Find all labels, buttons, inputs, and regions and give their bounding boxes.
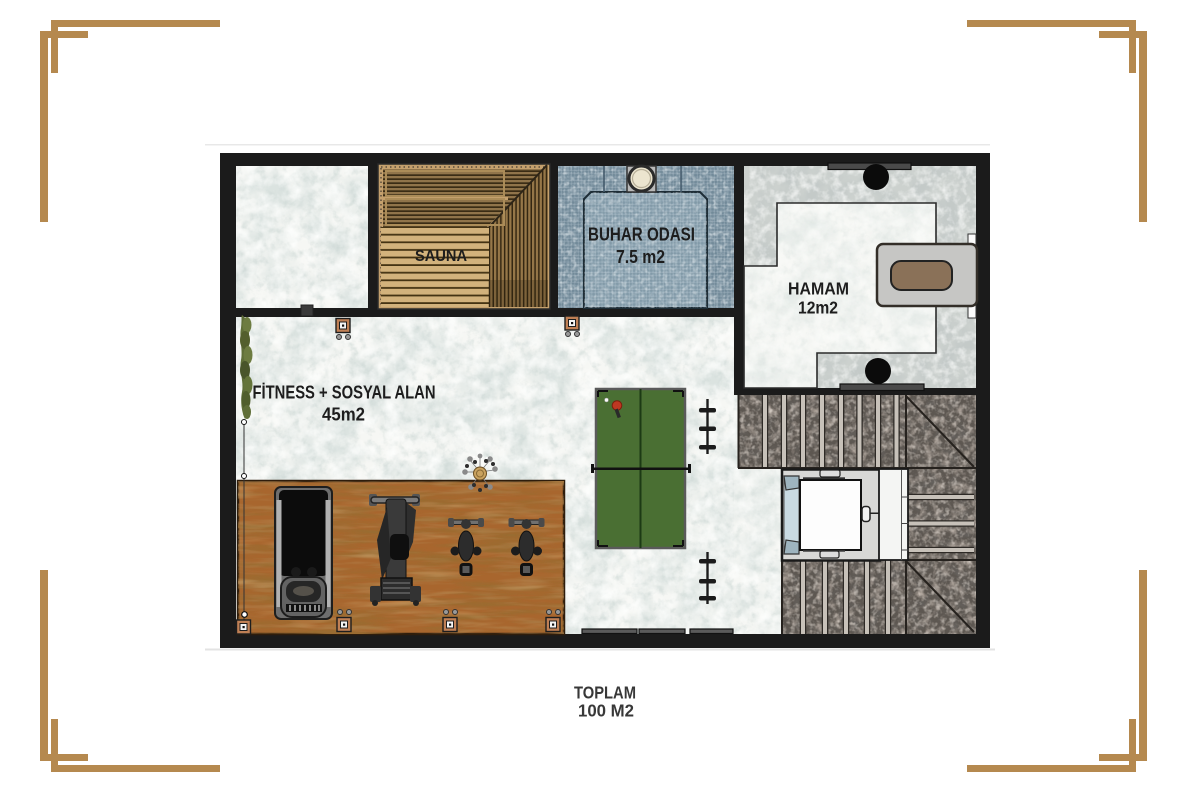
svg-text:12m2: 12m2	[798, 297, 838, 317]
svg-text:TOPLAM: TOPLAM	[574, 683, 636, 703]
svg-text:HAMAM: HAMAM	[788, 278, 849, 298]
svg-text:100 M2: 100 M2	[578, 701, 634, 721]
svg-text:45m2: 45m2	[322, 405, 365, 425]
svg-text:SAUNA: SAUNA	[415, 248, 467, 265]
svg-text:FİTNESS + SOSYAL ALAN: FİTNESS + SOSYAL ALAN	[253, 381, 436, 402]
svg-text:7.5 m2: 7.5 m2	[616, 247, 665, 267]
svg-text:BUHAR ODASI: BUHAR ODASI	[588, 225, 695, 245]
